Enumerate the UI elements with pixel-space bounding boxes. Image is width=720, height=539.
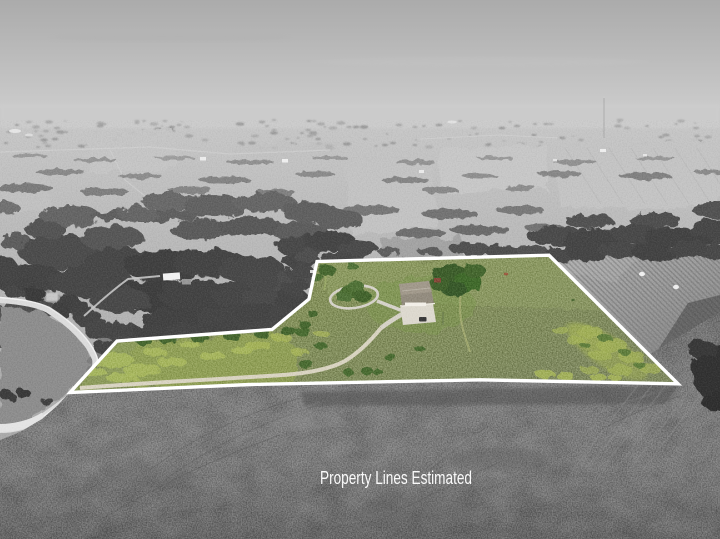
- svg-text:Property Lines Estimated: Property Lines Estimated: [320, 468, 472, 488]
